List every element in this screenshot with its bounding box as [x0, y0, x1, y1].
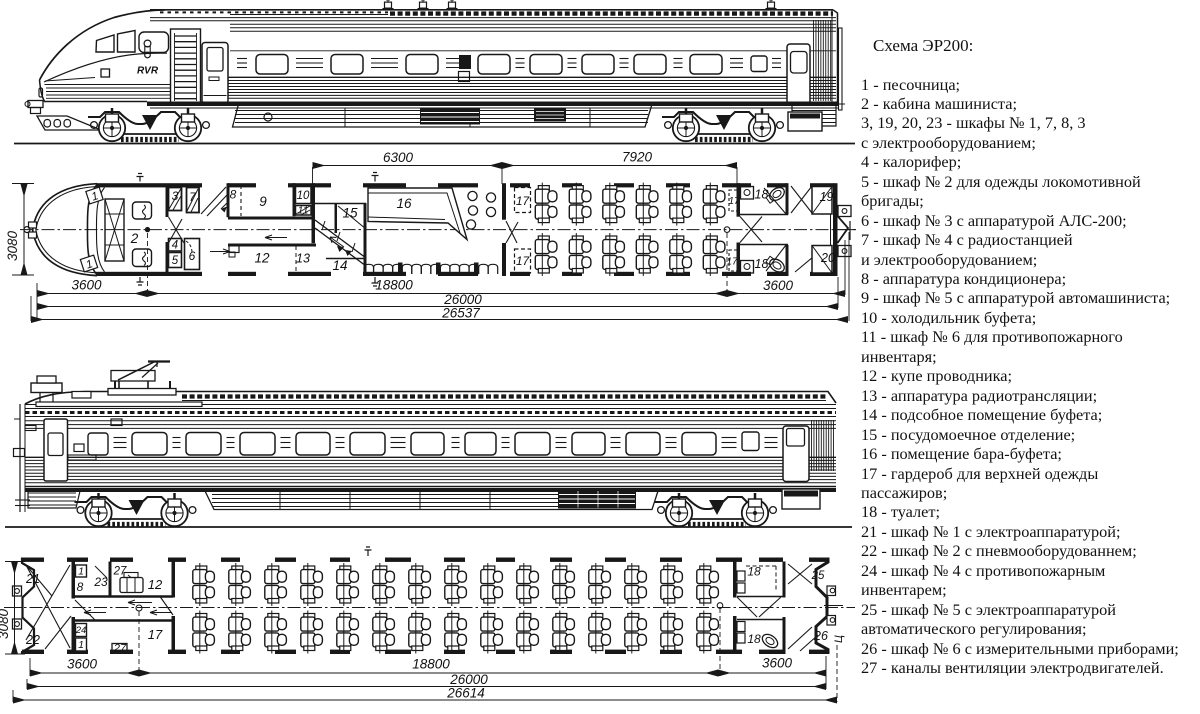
svg-text:19: 19 — [820, 190, 834, 204]
svg-text:10: 10 — [297, 190, 310, 202]
svg-text:1: 1 — [78, 566, 84, 578]
svg-text:22: 22 — [25, 633, 40, 647]
svg-text:14: 14 — [332, 258, 347, 273]
svg-text:Ц: Ц — [833, 635, 845, 643]
svg-text:RVR: RVR — [137, 66, 159, 77]
svg-text:4: 4 — [172, 240, 178, 252]
svg-text:7920: 7920 — [622, 150, 653, 165]
svg-text:8: 8 — [230, 188, 237, 202]
svg-text:18: 18 — [747, 632, 761, 646]
svg-text:16: 16 — [396, 196, 412, 211]
svg-text:17: 17 — [148, 627, 163, 642]
svg-text:3600: 3600 — [763, 278, 794, 293]
svg-text:17: 17 — [516, 254, 531, 268]
svg-text:9: 9 — [259, 194, 267, 209]
svg-text:3600: 3600 — [71, 278, 102, 293]
svg-text:8: 8 — [77, 580, 84, 594]
svg-text:18: 18 — [755, 188, 769, 202]
svg-text:13: 13 — [296, 252, 310, 266]
svg-text:6300: 6300 — [383, 150, 414, 165]
svg-text:25: 25 — [811, 570, 825, 582]
svg-text:15: 15 — [342, 206, 358, 221]
svg-text:20: 20 — [820, 251, 835, 265]
svg-text:18800: 18800 — [412, 657, 450, 672]
svg-text:3600: 3600 — [67, 657, 98, 672]
svg-text:18: 18 — [755, 257, 769, 271]
svg-text:3600: 3600 — [762, 656, 793, 671]
svg-text:21: 21 — [25, 572, 40, 586]
svg-text:1: 1 — [78, 639, 84, 651]
svg-text:3: 3 — [172, 189, 179, 203]
svg-text:5: 5 — [172, 255, 179, 267]
svg-text:24: 24 — [75, 625, 87, 636]
svg-text:27: 27 — [113, 643, 127, 655]
svg-text:11: 11 — [298, 205, 309, 217]
svg-text:27: 27 — [113, 566, 127, 578]
svg-text:18800: 18800 — [375, 278, 413, 293]
svg-text:17: 17 — [726, 257, 738, 268]
svg-text:12: 12 — [148, 577, 163, 592]
svg-text:26614: 26614 — [446, 686, 485, 701]
svg-text:3080: 3080 — [5, 230, 20, 261]
svg-text:17: 17 — [516, 194, 531, 208]
svg-text:2: 2 — [130, 231, 139, 246]
svg-text:18: 18 — [747, 565, 761, 579]
svg-text:12: 12 — [254, 251, 270, 266]
svg-text:26537: 26537 — [441, 306, 480, 321]
svg-text:3080: 3080 — [0, 608, 11, 639]
